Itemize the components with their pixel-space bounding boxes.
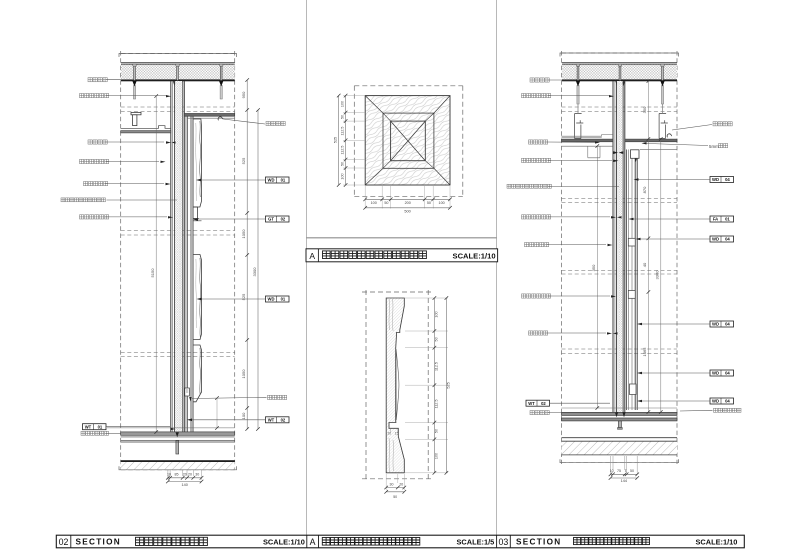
svg-text:100: 100 (435, 453, 439, 459)
svg-text:01: 01 (725, 217, 730, 222)
svg-text:A: A (310, 537, 316, 547)
svg-text:1050: 1050 (241, 369, 246, 379)
svg-text:5mm: 5mm (709, 144, 719, 149)
svg-text:WD: WD (712, 371, 719, 376)
svg-text:WD: WD (712, 177, 719, 182)
svg-text:02: 02 (281, 418, 286, 423)
svg-text:SCALE:1/10: SCALE:1/10 (263, 537, 305, 546)
svg-text:50: 50 (435, 337, 439, 341)
svg-text:SCALE:1/5: SCALE:1/5 (457, 537, 495, 546)
svg-text:03: 03 (499, 537, 509, 547)
svg-text:50: 50 (630, 469, 634, 473)
svg-text:20: 20 (183, 473, 187, 477)
svg-text:3300: 3300 (252, 267, 257, 277)
svg-text:20: 20 (399, 483, 403, 487)
svg-text:525: 525 (334, 137, 338, 143)
svg-text:WD: WD (712, 399, 719, 404)
svg-text:100: 100 (435, 311, 439, 317)
svg-text:A: A (309, 251, 315, 261)
svg-text:1050: 1050 (241, 229, 246, 239)
svg-text:112.5: 112.5 (435, 399, 439, 408)
svg-text:04: 04 (725, 322, 730, 327)
svg-text:SCALE:1/10: SCALE:1/10 (696, 537, 738, 546)
svg-text:112.5: 112.5 (340, 127, 344, 136)
svg-text:02: 02 (541, 401, 546, 406)
svg-text:350: 350 (591, 264, 596, 271)
svg-text:50: 50 (340, 115, 344, 119)
svg-text:WT: WT (268, 418, 275, 423)
svg-text:50: 50 (340, 162, 344, 166)
svg-text:950: 950 (241, 91, 246, 98)
svg-text:40: 40 (642, 262, 647, 267)
svg-text:SECTION: SECTION (516, 538, 562, 547)
svg-text:100: 100 (340, 101, 344, 107)
svg-text:10: 10 (167, 473, 171, 477)
svg-text:02: 02 (59, 537, 69, 547)
svg-text:5150: 5150 (150, 268, 155, 278)
svg-text:112.5: 112.5 (435, 362, 439, 371)
svg-text:50: 50 (427, 201, 431, 205)
svg-text:200: 200 (405, 201, 411, 205)
svg-text:01: 01 (281, 297, 286, 302)
svg-text:50: 50 (435, 429, 439, 433)
svg-text:15: 15 (395, 432, 399, 436)
svg-text:3300: 3300 (655, 270, 660, 280)
svg-text:50: 50 (384, 201, 388, 205)
svg-text:WD: WD (268, 178, 275, 183)
svg-text:500: 500 (404, 209, 410, 213)
svg-text:50: 50 (393, 495, 397, 499)
svg-text:100: 100 (371, 201, 377, 205)
svg-text:04: 04 (725, 371, 730, 376)
svg-text:144: 144 (621, 479, 627, 483)
svg-text:FA: FA (713, 217, 718, 222)
svg-text:20: 20 (387, 432, 391, 436)
svg-text:WD: WD (712, 322, 719, 327)
svg-text:WT: WT (528, 401, 535, 406)
svg-text:100: 100 (439, 201, 445, 205)
svg-text:30: 30 (195, 473, 199, 477)
svg-text:WD: WD (268, 297, 275, 302)
svg-text:GT: GT (268, 217, 274, 222)
svg-text:85: 85 (175, 473, 179, 477)
svg-text:01: 01 (98, 424, 103, 429)
svg-text:SCALE:1/10: SCALE:1/10 (453, 251, 496, 260)
svg-text:04: 04 (725, 177, 730, 182)
svg-text:140: 140 (182, 483, 188, 487)
svg-text:04: 04 (725, 399, 730, 404)
svg-text:30: 30 (390, 483, 394, 487)
svg-text:525: 525 (241, 157, 246, 164)
svg-text:SECTION: SECTION (76, 538, 122, 547)
svg-text:870: 870 (642, 186, 647, 193)
svg-text:01: 01 (281, 178, 286, 183)
svg-text:350: 350 (642, 106, 647, 113)
svg-text:WD: WD (712, 237, 719, 242)
svg-text:10: 10 (610, 469, 614, 473)
svg-text:100: 100 (241, 412, 246, 419)
svg-text:04: 04 (725, 237, 730, 242)
svg-text:WT: WT (85, 424, 92, 429)
svg-text:100: 100 (340, 173, 344, 179)
svg-text:02: 02 (281, 217, 286, 222)
svg-text:75: 75 (617, 469, 621, 473)
svg-text:1065: 1065 (642, 347, 647, 357)
svg-text:112.5: 112.5 (340, 146, 344, 155)
svg-text:525: 525 (447, 382, 451, 388)
